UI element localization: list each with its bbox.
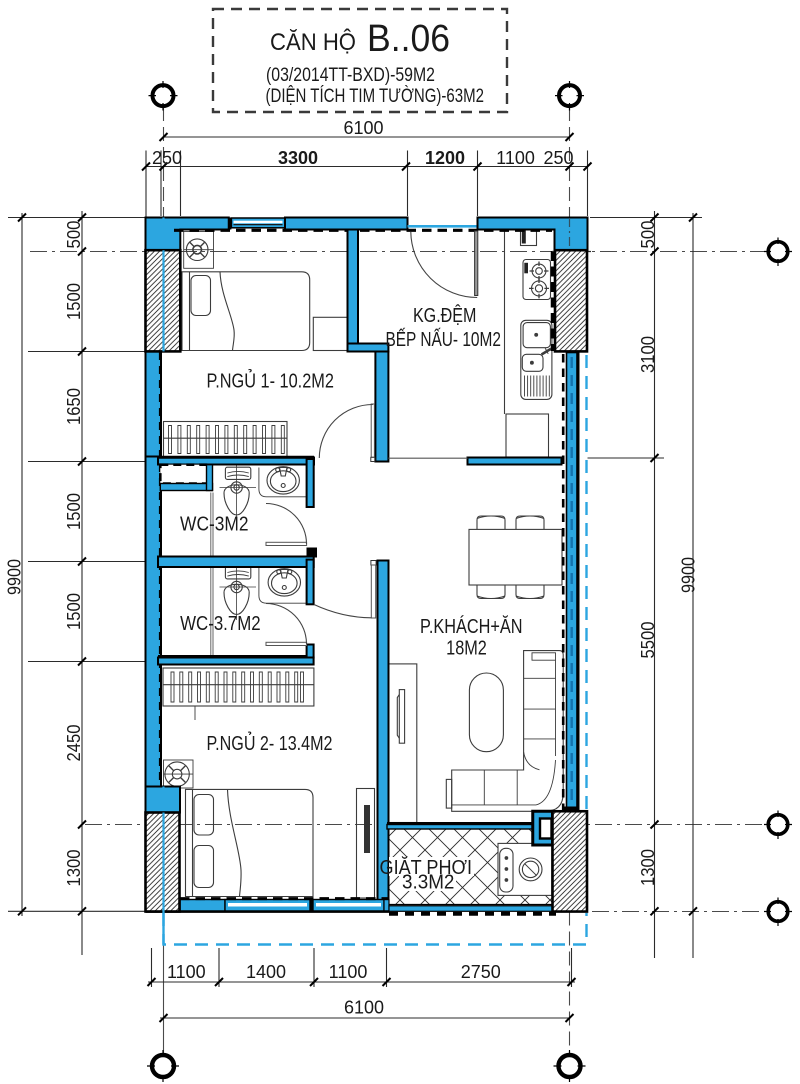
svg-text:1500: 1500 bbox=[64, 283, 84, 320]
svg-text:3100: 3100 bbox=[638, 336, 658, 373]
svg-text:KG.ĐỆM: KG.ĐỆM bbox=[413, 304, 477, 327]
svg-text:5500: 5500 bbox=[638, 622, 658, 659]
svg-text:2450: 2450 bbox=[64, 725, 84, 762]
svg-text:P.NGỦ 1- 10.2M2: P.NGỦ 1- 10.2M2 bbox=[206, 369, 334, 393]
svg-text:B..06: B..06 bbox=[367, 18, 450, 60]
svg-text:18M2: 18M2 bbox=[446, 638, 487, 660]
svg-text:WC-3M2: WC-3M2 bbox=[180, 514, 249, 536]
svg-text:1650: 1650 bbox=[64, 388, 84, 425]
svg-text:6100: 6100 bbox=[344, 998, 384, 1018]
svg-text:1100: 1100 bbox=[496, 148, 535, 168]
svg-text:9900: 9900 bbox=[679, 557, 699, 593]
svg-text:9900: 9900 bbox=[5, 559, 25, 595]
svg-text:(DIỆN TÍCH TIM TƯỜNG)-63M2: (DIỆN TÍCH TIM TƯỜNG)-63M2 bbox=[266, 84, 485, 107]
svg-text:BẾP NẤU- 10M2: BẾP NẤU- 10M2 bbox=[385, 328, 501, 351]
svg-text:1200: 1200 bbox=[425, 148, 465, 168]
svg-text:WC-3.7M2: WC-3.7M2 bbox=[180, 613, 261, 635]
svg-text:500: 500 bbox=[638, 221, 658, 249]
svg-text:(03/2014TT-BXD)-59M2: (03/2014TT-BXD)-59M2 bbox=[266, 64, 435, 86]
svg-text:2750: 2750 bbox=[461, 962, 501, 982]
svg-text:250: 250 bbox=[152, 148, 182, 168]
svg-text:6100: 6100 bbox=[343, 118, 383, 138]
svg-text:1100: 1100 bbox=[167, 962, 206, 982]
svg-text:P.NGỦ 2- 13.4M2: P.NGỦ 2- 13.4M2 bbox=[207, 731, 333, 755]
svg-text:1400: 1400 bbox=[246, 962, 286, 982]
svg-text:1300: 1300 bbox=[638, 849, 658, 886]
svg-text:P.KHÁCH+ĂN: P.KHÁCH+ĂN bbox=[420, 615, 523, 638]
svg-text:CĂN HỘ: CĂN HỘ bbox=[270, 28, 356, 56]
svg-text:3300: 3300 bbox=[278, 148, 318, 168]
svg-text:1500: 1500 bbox=[64, 493, 84, 530]
svg-text:1300: 1300 bbox=[64, 850, 84, 887]
svg-text:3.3M2: 3.3M2 bbox=[402, 872, 455, 894]
svg-text:500: 500 bbox=[64, 221, 84, 249]
svg-text:250: 250 bbox=[543, 148, 573, 168]
svg-text:1100: 1100 bbox=[329, 962, 368, 982]
svg-text:1500: 1500 bbox=[64, 593, 84, 630]
